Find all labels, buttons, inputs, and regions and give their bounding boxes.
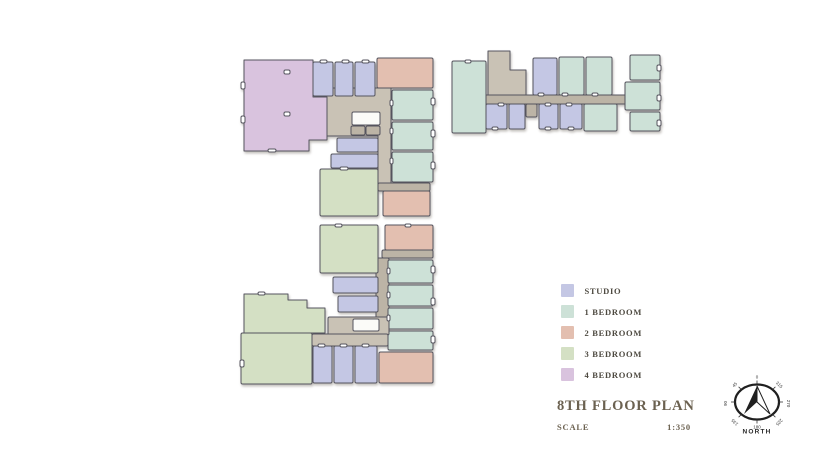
floor-plan-canvas: 04590135180225270315 NORTH [0, 0, 832, 468]
scale-value: 1:350 [667, 422, 691, 432]
building-section-south [241, 225, 433, 384]
legend-row: 3 BEDROOM [561, 343, 642, 364]
door-notch [465, 60, 471, 63]
legend-row: 1 BEDROOM [561, 301, 642, 322]
stair-core [351, 126, 365, 135]
door-notch [318, 344, 325, 347]
unit-studio [486, 104, 507, 129]
core-corridor [470, 95, 632, 104]
unit-1-bedroom [388, 260, 433, 283]
compass-degree-label: 135 [730, 417, 739, 426]
compass-degree-label: 90 [723, 401, 728, 407]
door-notch [492, 127, 498, 130]
unit-studio [333, 277, 378, 293]
unit-studio [335, 62, 353, 96]
door-notch [268, 149, 276, 152]
door-notch [241, 82, 245, 89]
page-background: 04590135180225270315 NORTH STUDIO1 BEDRO… [0, 0, 832, 468]
core-corridor [382, 250, 433, 258]
window-notch [657, 65, 661, 71]
door-notch [390, 100, 393, 106]
window-notch [240, 360, 244, 367]
door-notch [387, 292, 390, 298]
legend-label: 2 BEDROOM [585, 328, 643, 338]
unit-studio [338, 296, 378, 312]
door-notch [284, 112, 290, 116]
unit-3-bedroom [320, 169, 378, 216]
legend-row: 4 BEDROOM [561, 364, 642, 385]
stair-tower [488, 51, 526, 95]
compass-degree-label: 45 [731, 381, 738, 388]
legend-swatch [561, 284, 574, 297]
legend-label: STUDIO [585, 286, 622, 296]
window-notch [431, 336, 435, 343]
core-corridor [378, 183, 430, 191]
legend: STUDIO1 BEDROOM2 BEDROOM3 BEDROOM4 BEDRO… [561, 280, 642, 385]
unit-1-bedroom [584, 104, 617, 131]
compass-degree-label: 270 [786, 400, 791, 408]
legend-label: 3 BEDROOM [585, 349, 643, 359]
window-notch [431, 298, 435, 305]
north-arrow-icon: 04590135180225270315 NORTH [723, 375, 791, 436]
window-notch [431, 130, 435, 137]
unit-studio [313, 62, 333, 96]
door-notch [538, 93, 544, 96]
window-notch [431, 162, 435, 169]
unit-studio [509, 104, 525, 129]
stair-core [526, 104, 537, 117]
unit-studio [355, 346, 377, 383]
door-notch [387, 268, 390, 274]
door-notch [362, 344, 369, 347]
unit-studio [355, 62, 375, 96]
building-section-northeast [452, 51, 660, 133]
legend-row: STUDIO [561, 280, 642, 301]
scale-label: SCALE [557, 422, 589, 432]
unit-1-bedroom [388, 308, 433, 329]
door-notch [592, 93, 598, 96]
compass-needle-dark [744, 386, 757, 414]
legend-swatch [561, 347, 574, 360]
unit-3-bedroom [320, 225, 378, 273]
door-notch [284, 70, 290, 74]
compass-tick [739, 414, 742, 417]
unit-studio [331, 154, 378, 168]
compass-needle-light [757, 386, 770, 414]
compass-tick [739, 387, 742, 390]
door-notch [390, 158, 393, 164]
window-notch [258, 292, 265, 295]
unit-studio [539, 104, 558, 129]
door-notch [241, 116, 245, 123]
unit-2-bedroom [377, 58, 433, 88]
legend-label: 1 BEDROOM [585, 307, 643, 317]
unit-2-bedroom [383, 191, 430, 216]
door-notch [545, 103, 551, 106]
door-notch [340, 344, 347, 347]
door-notch [335, 224, 342, 227]
compass-degree-label: 0 [756, 375, 759, 380]
unit-1-bedroom [392, 152, 433, 182]
door-notch [568, 127, 574, 130]
unit-2-bedroom [385, 225, 433, 250]
north-label: NORTH [742, 429, 771, 436]
door-notch [362, 60, 369, 63]
compass-degree-label: 315 [775, 380, 784, 389]
unit-3-bedroom [241, 333, 312, 384]
unit-1-bedroom [392, 122, 433, 150]
title-block: 8TH FLOOR PLAN SCALE 1:350 [557, 398, 691, 432]
scale-row: SCALE 1:350 [557, 422, 691, 432]
window-notch [657, 120, 661, 126]
unit-studio [560, 104, 582, 129]
compass-tick [773, 387, 776, 390]
door-notch [498, 103, 504, 106]
legend-swatch [561, 305, 574, 318]
window-notch [431, 266, 435, 273]
unit-1-bedroom [625, 82, 660, 110]
window-notch [657, 95, 661, 101]
legend-swatch [561, 326, 574, 339]
door-notch [340, 167, 348, 170]
door-notch [320, 60, 327, 63]
unit-1-bedroom [630, 112, 660, 131]
page-title: 8TH FLOOR PLAN [557, 398, 691, 415]
unit-1-bedroom [388, 285, 433, 306]
elevator-shaft [353, 319, 379, 331]
door-notch [390, 128, 393, 134]
unit-studio [533, 58, 557, 95]
door-notch [387, 315, 390, 321]
unit-1-bedroom [586, 57, 612, 95]
door-notch [342, 60, 349, 63]
door-notch [566, 103, 572, 106]
door-notch [545, 127, 551, 130]
compass-degree-label: 225 [775, 418, 784, 427]
unit-2-bedroom [379, 352, 433, 383]
unit-studio [313, 346, 332, 383]
unit-studio [334, 346, 353, 383]
unit-1-bedroom [452, 61, 486, 133]
building-section-northwest [244, 58, 433, 216]
unit-1-bedroom [630, 55, 660, 80]
unit-1-bedroom [559, 57, 584, 95]
legend-row: 2 BEDROOM [561, 322, 642, 343]
legend-swatch [561, 368, 574, 381]
door-notch [562, 93, 568, 96]
unit-3-bedroom [244, 294, 325, 333]
door-notch [405, 224, 411, 227]
unit-1-bedroom [392, 90, 433, 120]
window-notch [431, 98, 435, 105]
unit-studio [337, 138, 378, 152]
stair-core [366, 126, 380, 135]
unit-1-bedroom [388, 331, 433, 350]
compass-tick [773, 414, 776, 417]
legend-label: 4 BEDROOM [585, 370, 643, 380]
elevator-shaft [352, 112, 380, 125]
